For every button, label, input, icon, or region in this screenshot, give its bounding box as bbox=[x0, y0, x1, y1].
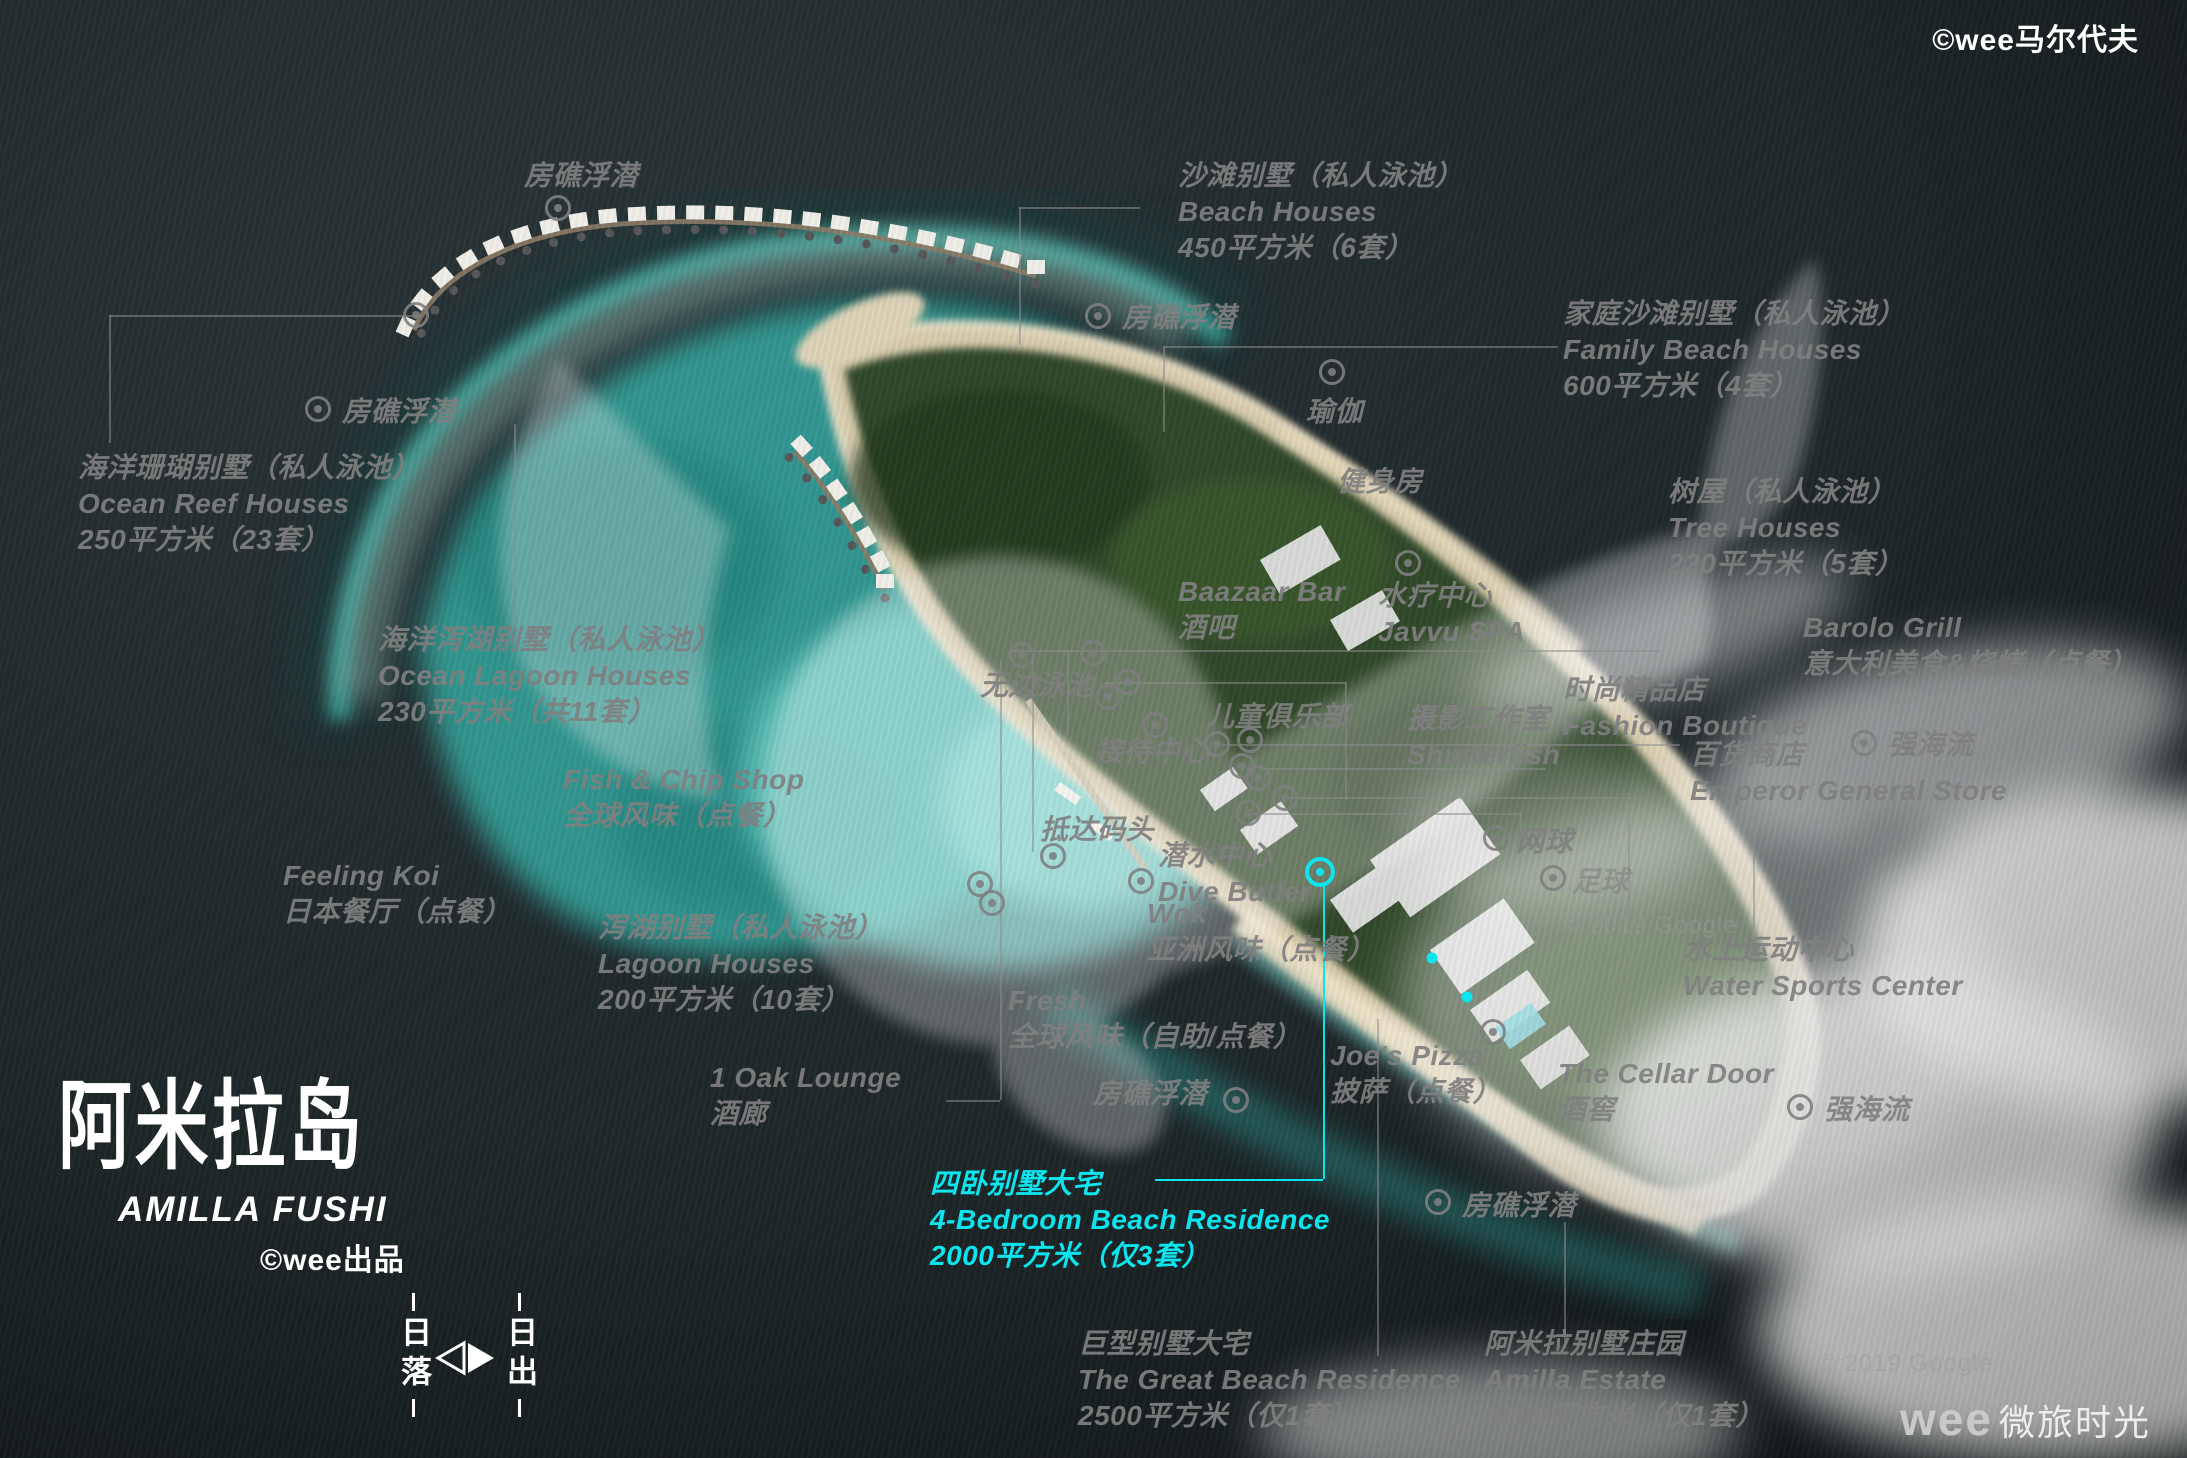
label-reef-snorkel-top: 房礁浮潜 bbox=[524, 158, 638, 194]
label-line: 日本餐厅（点餐） bbox=[283, 894, 511, 930]
label-reef-snorkel-mid-bottom: 房礁浮潜 bbox=[1093, 1076, 1207, 1112]
label-line: 无边泳池 bbox=[980, 668, 1094, 704]
compass-dash bbox=[412, 1293, 415, 1311]
label-strong-current-right: 强海流 bbox=[1888, 727, 1974, 763]
label-line: 220平方米（5套） bbox=[1668, 546, 1903, 582]
label-line: 海洋珊瑚别墅（私人泳池） bbox=[78, 450, 420, 486]
label-line: Fish & Chip Shop bbox=[563, 762, 804, 798]
label-line: 房礁浮潜 bbox=[1462, 1188, 1576, 1224]
label-line: Joe's Pizza bbox=[1330, 1038, 1501, 1074]
label-line: 200平方米（10套） bbox=[598, 982, 883, 1018]
label-line: 1 Oak Lounge bbox=[710, 1060, 901, 1096]
label-kids-club: 儿童俱乐部 bbox=[1206, 699, 1349, 735]
sunrise-text: 日出 bbox=[504, 1316, 535, 1394]
watermark-bottom-right: wee 微旅时光 bbox=[1900, 1396, 2151, 1442]
label-line: Emperor General Store bbox=[1690, 773, 2007, 809]
label-line: 足球 bbox=[1572, 864, 1629, 900]
label-line: 四卧别墅大宅 bbox=[930, 1166, 1330, 1202]
label-line: Lagoon Houses bbox=[598, 946, 883, 982]
label-reef-snorkel-left-mid: 房礁浮潜 bbox=[1122, 300, 1236, 336]
label-line: Amilla Estate bbox=[1484, 1362, 1764, 1398]
watermark-wee: wee bbox=[1900, 1396, 1993, 1442]
title-byline: ©wee出品 bbox=[260, 1246, 405, 1276]
label-line: 250平方米（23套） bbox=[78, 522, 420, 558]
watermark-brand: 微旅时光 bbox=[1999, 1405, 2151, 1441]
label-oak-lounge: 1 Oak Lounge酒廊 bbox=[710, 1060, 901, 1132]
label-ocean-lagoon-houses: 海洋泻湖别墅（私人泳池）Ocean Lagoon Houses230平方米（共1… bbox=[378, 622, 720, 730]
label-arrival-jetty: 抵达码头 bbox=[1040, 812, 1154, 848]
label-reception: 接待中心 bbox=[1095, 734, 1209, 770]
compass-diamond-icon bbox=[434, 1340, 498, 1376]
label-soccer: 足球 bbox=[1572, 864, 1629, 900]
label-line: 意大利美食&烧烤（点餐） bbox=[1803, 646, 2137, 682]
label-line: 儿童俱乐部 bbox=[1206, 699, 1349, 735]
label-line: 房礁浮潜 bbox=[1122, 300, 1236, 336]
compass-dash bbox=[518, 1293, 521, 1311]
label-line: 披萨（点餐） bbox=[1330, 1074, 1501, 1110]
label-ocean-reef-houses: 海洋珊瑚别墅（私人泳池）Ocean Reef Houses250平方米（23套） bbox=[78, 450, 420, 558]
label-reef-snorkel-bottom-right: 房礁浮潜 bbox=[1462, 1188, 1576, 1224]
label-line: 强海流 bbox=[1824, 1092, 1910, 1128]
label-line: The Great Beach Residence bbox=[1078, 1362, 1461, 1398]
label-line: 瑜伽 bbox=[1306, 394, 1363, 430]
label-javvu-spa: 水疗中心Javvu SPA bbox=[1378, 578, 1525, 650]
label-photo-studio: 摄影工作室Shutterfish bbox=[1407, 701, 1560, 773]
label-joes-pizza: Joe's Pizza披萨（点餐） bbox=[1330, 1038, 1501, 1110]
label-line: 家庭沙滩别墅（私人泳池） bbox=[1563, 296, 1905, 332]
label-line: 海洋泻湖别墅（私人泳池） bbox=[378, 622, 720, 658]
label-wok: Wok亚洲风味（点餐） bbox=[1147, 896, 1375, 968]
label-beach-houses: 沙滩别墅（私人泳池）Beach Houses450平方米（6套） bbox=[1178, 158, 1463, 266]
label-line: Feeling Koi bbox=[283, 858, 511, 894]
watermark-top-right: ©wee马尔代夫 bbox=[1932, 26, 2139, 56]
label-line: 水疗中心 bbox=[1378, 578, 1525, 614]
label-line: 酒廊 bbox=[710, 1096, 901, 1132]
label-strong-current-bottom: 强海流 bbox=[1824, 1092, 1910, 1128]
label-line: 时尚精品店 bbox=[1563, 672, 1807, 708]
amilla-fushi-resort-map: 房礁浮潜沙滩别墅（私人泳池）Beach Houses450平方米（6套）家庭沙滩… bbox=[0, 0, 2187, 1458]
label-line: 230平方米（共11套） bbox=[378, 694, 720, 730]
island-title-zh: 阿米拉岛 bbox=[58, 1076, 365, 1178]
label-line: 巨型别墅大宅 bbox=[1078, 1326, 1461, 1362]
label-fresh: Fresh全球风味（自助/点餐） bbox=[1008, 983, 1301, 1055]
label-line: Ocean Lagoon Houses bbox=[378, 658, 720, 694]
label-line: 2500平方米（仅1套） bbox=[1078, 1398, 1461, 1434]
label-line: Fresh bbox=[1008, 983, 1301, 1019]
label-line: 网球 bbox=[1516, 824, 1573, 860]
label-tennis: 网球 bbox=[1516, 824, 1573, 860]
label-line: 3000平方米（仅1套） bbox=[1484, 1398, 1764, 1434]
label-line: Barolo Grill bbox=[1803, 610, 2137, 646]
label-google-credit-bottom: © 2019 Google bbox=[1818, 1350, 1993, 1378]
label-line: 亚洲风味（点餐） bbox=[1147, 932, 1375, 968]
island-title-en: AMILLA FUSHI bbox=[118, 1192, 388, 1227]
label-line: 泻湖别墅（私人泳池） bbox=[598, 910, 883, 946]
label-amilla-estate: 阿米拉别墅庄园Amilla Estate3000平方米（仅1套） bbox=[1484, 1326, 1764, 1434]
label-infinity-pool: 无边泳池 bbox=[980, 668, 1094, 704]
label-fashion-boutique: 时尚精品店Fashion Boutique bbox=[1563, 672, 1807, 744]
compass-dash bbox=[412, 1399, 415, 1417]
label-yoga: 瑜伽 bbox=[1306, 394, 1363, 430]
compass-dash bbox=[518, 1399, 521, 1417]
label-line: Tree Houses bbox=[1668, 510, 1903, 546]
label-line: 强海流 bbox=[1888, 727, 1974, 763]
label-water-sports-center: 水上运动中心Water Sports Center bbox=[1683, 932, 1963, 1004]
label-family-beach-houses: 家庭沙滩别墅（私人泳池）Family Beach Houses600平方米（4套… bbox=[1563, 296, 1905, 404]
compass-sunrise-label: 日出 bbox=[504, 1288, 535, 1422]
label-line: Family Beach Houses bbox=[1563, 332, 1905, 368]
label-line: 健身房 bbox=[1337, 464, 1423, 500]
label-fish-chip-shop: Fish & Chip Shop全球风味（点餐） bbox=[563, 762, 804, 834]
label-line: Beach Houses bbox=[1178, 194, 1463, 230]
label-line: 4-Bedroom Beach Residence bbox=[930, 1202, 1330, 1238]
label-line: 房礁浮潜 bbox=[342, 394, 456, 430]
label-line: 沙滩别墅（私人泳池） bbox=[1178, 158, 1463, 194]
label-cellar-door: The Cellar Door酒窖 bbox=[1558, 1056, 1774, 1128]
label-lagoon-houses: 泻湖别墅（私人泳池）Lagoon Houses200平方米（10套） bbox=[598, 910, 883, 1018]
label-line: 树屋（私人泳池） bbox=[1668, 474, 1903, 510]
label-line: Baazaar Bar bbox=[1178, 574, 1345, 610]
label-line: Javvu SPA bbox=[1378, 614, 1525, 650]
label-line: Water Sports Center bbox=[1683, 968, 1963, 1004]
label-line: Shutterfish bbox=[1407, 737, 1560, 773]
label-baazaar-bar: Baazaar Bar酒吧 bbox=[1178, 574, 1345, 646]
label-line: 房礁浮潜 bbox=[1093, 1076, 1207, 1112]
label-feeling-koi: Feeling Koi日本餐厅（点餐） bbox=[283, 858, 511, 930]
sunset-text: 日落 bbox=[398, 1316, 429, 1394]
label-reef-snorkel-far-left: 房礁浮潜 bbox=[342, 394, 456, 430]
label-line: 2000平方米（仅3套） bbox=[930, 1238, 1330, 1274]
label-line: 全球风味（自助/点餐） bbox=[1008, 1019, 1301, 1055]
label-line: 酒窖 bbox=[1558, 1092, 1774, 1128]
label-tree-houses: 树屋（私人泳池）Tree Houses220平方米（5套） bbox=[1668, 474, 1903, 582]
label-line: 全球风味（点餐） bbox=[563, 798, 804, 834]
label-line: 摄影工作室 bbox=[1407, 701, 1560, 737]
label-line: The Cellar Door bbox=[1558, 1056, 1774, 1092]
label-line: 抵达码头 bbox=[1040, 812, 1154, 848]
compass-sunset-label: 日落 bbox=[398, 1288, 429, 1422]
labels-layer: 房礁浮潜沙滩别墅（私人泳池）Beach Houses450平方米（6套）家庭沙滩… bbox=[0, 0, 2187, 1458]
label-line: © 2019 Google bbox=[1818, 1350, 1993, 1378]
label-gym: 健身房 bbox=[1337, 464, 1423, 500]
label-line: 600平方米（4套） bbox=[1563, 368, 1905, 404]
label-line: 450平方米（6套） bbox=[1178, 230, 1463, 266]
label-line: 潜水中心 bbox=[1158, 838, 1311, 874]
label-great-beach-residence: 巨型别墅大宅The Great Beach Residence2500平方米（仅… bbox=[1078, 1326, 1461, 1434]
label-line: 接待中心 bbox=[1095, 734, 1209, 770]
label-barolo-grill: Barolo Grill意大利美食&烧烤（点餐） bbox=[1803, 610, 2137, 682]
label-line: 阿米拉别墅庄园 bbox=[1484, 1326, 1764, 1362]
label-line: 水上运动中心 bbox=[1683, 932, 1963, 968]
label-line: 房礁浮潜 bbox=[524, 158, 638, 194]
label-line: Wok bbox=[1147, 896, 1375, 932]
label-line: Ocean Reef Houses bbox=[78, 486, 420, 522]
label-line: 酒吧 bbox=[1178, 610, 1345, 646]
label-residence-4br: 四卧别墅大宅4-Bedroom Beach Residence2000平方米（仅… bbox=[930, 1166, 1330, 1274]
